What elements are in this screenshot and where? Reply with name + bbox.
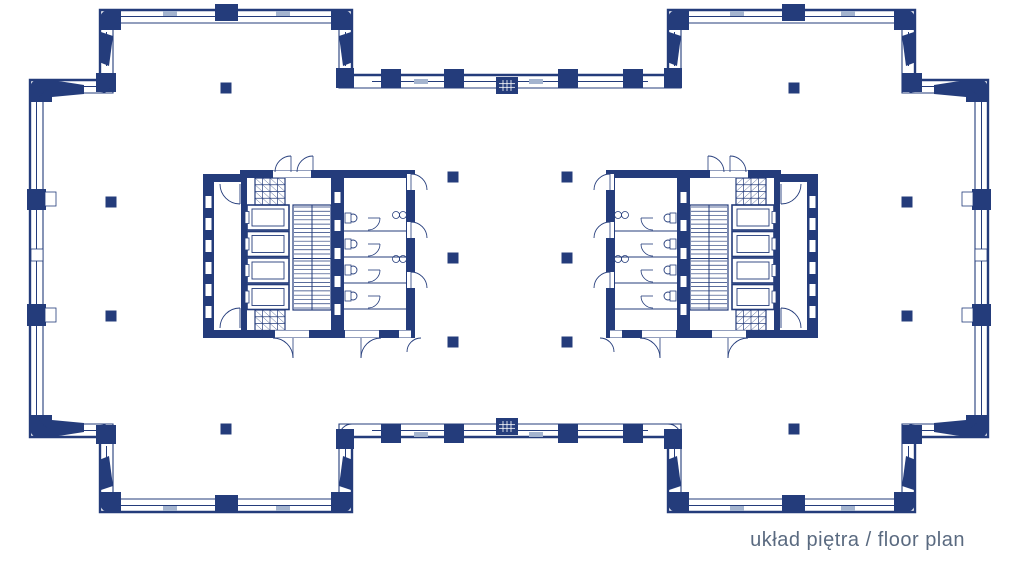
column: [106, 311, 117, 322]
column: [902, 197, 913, 208]
building-shell: [27, 4, 991, 512]
column: [562, 337, 573, 348]
column: [221, 424, 232, 435]
column: [789, 424, 800, 435]
column: [106, 197, 117, 208]
floor-plan-drawing: [0, 0, 1018, 566]
column: [221, 83, 232, 94]
west-core: [203, 156, 427, 358]
column: [562, 172, 573, 183]
east-core: [594, 156, 818, 358]
column: [902, 311, 913, 322]
column: [789, 83, 800, 94]
interior-columns: [106, 83, 913, 435]
plan-caption: układ piętra / floor plan: [750, 529, 965, 552]
column: [448, 172, 459, 183]
floor-plan-page: układ piętra / floor plan: [0, 0, 1018, 566]
column: [448, 253, 459, 264]
column: [448, 337, 459, 348]
column: [562, 253, 573, 264]
